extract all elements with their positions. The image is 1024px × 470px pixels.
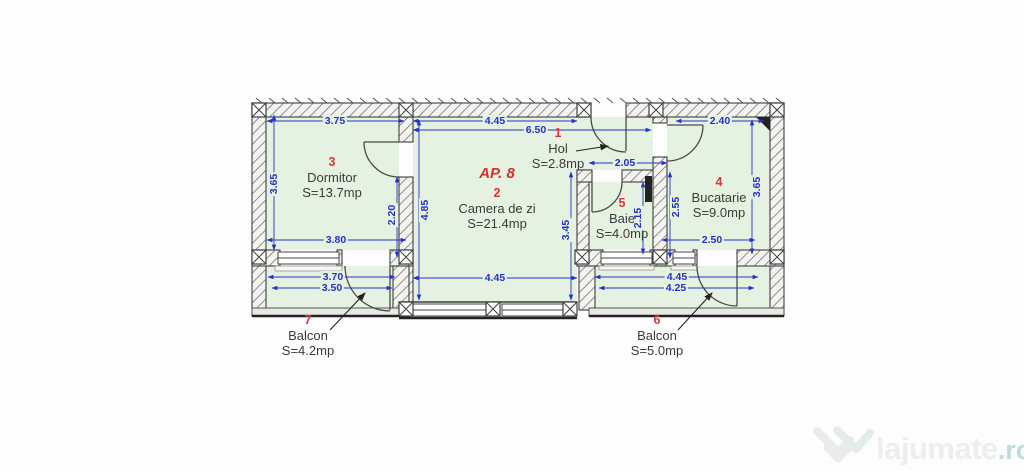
dim-dormitor-door: 2.20	[386, 203, 398, 227]
dim-balcon6-inner: 4.25	[664, 282, 688, 294]
room-number: 7	[282, 313, 334, 328]
room-name: Hol	[532, 141, 584, 156]
room-area: S=9.0mp	[692, 205, 747, 220]
room-number: 6	[631, 313, 683, 328]
room-name: Balcon	[631, 328, 683, 343]
dim-dormitor-bottom: 3.80	[324, 234, 348, 246]
room-number: 1	[532, 126, 584, 141]
dim-camera-right: 3.45	[560, 218, 572, 242]
room-name: Camera de zi	[458, 201, 535, 216]
room-label-hol: 1 Hol S=2.8mp	[532, 126, 584, 171]
room-area: S=13.7mp	[302, 185, 362, 200]
dim-camera-left: 4.85	[419, 198, 431, 222]
room-name: Bucatarie	[692, 190, 747, 205]
room-number: 5	[596, 196, 648, 211]
room-label-bucatarie: 4 Bucatarie S=9.0mp	[692, 175, 747, 220]
dim-bucatarie-top: 2.40	[708, 115, 732, 127]
dim-bucatarie-bottom: 2.50	[700, 234, 724, 246]
room-name: Dormitor	[302, 170, 362, 185]
survey-ticks	[256, 98, 782, 103]
floorplan-page: 3.75 4.45 6.50 2.40 2.05 3.80 2.50 4.45 …	[0, 0, 1024, 470]
watermark: lajumate.ro	[810, 422, 1024, 466]
room-label-camera-de-zi: 2 Camera de zi S=21.4mp	[458, 186, 535, 231]
room-label-baie: 5 Baie S=4.0mp	[596, 196, 648, 241]
apartment-title: AP. 8	[479, 165, 515, 182]
room-label-balcon-7: 7 Balcon S=4.2mp	[282, 313, 334, 358]
room-name: Baie	[596, 211, 648, 226]
room-area: S=5.0mp	[631, 343, 683, 358]
dim-camera-bottom: 4.45	[483, 272, 507, 284]
dim-camera-top: 4.45	[483, 115, 507, 127]
room-number: 4	[692, 175, 747, 190]
dim-dormitor-top: 3.75	[323, 115, 347, 127]
watermark-brand: lajumate	[876, 432, 998, 466]
room-name: Balcon	[282, 328, 334, 343]
room-number: 2	[458, 186, 535, 201]
dim-balcon7-inner: 3.50	[320, 282, 344, 294]
dim-bucatarie-right: 3.65	[751, 175, 763, 199]
room-number: 3	[302, 155, 362, 170]
room-label-dormitor: 3 Dormitor S=13.7mp	[302, 155, 362, 200]
dim-bucatarie-left: 2.55	[670, 195, 682, 219]
room-area: S=21.4mp	[458, 216, 535, 231]
room-area: S=4.0mp	[596, 226, 648, 241]
room-area: S=4.2mp	[282, 343, 334, 358]
watermark-tld: .ro	[998, 434, 1024, 466]
watermark-logo-icon	[810, 422, 876, 466]
dim-dormitor-left: 3.65	[268, 172, 280, 196]
room-area: S=2.8mp	[532, 156, 584, 171]
room-label-balcon-6: 6 Balcon S=5.0mp	[631, 313, 683, 358]
dim-hol-width: 2.05	[613, 157, 637, 169]
floor-plan-drawing	[0, 0, 1024, 470]
